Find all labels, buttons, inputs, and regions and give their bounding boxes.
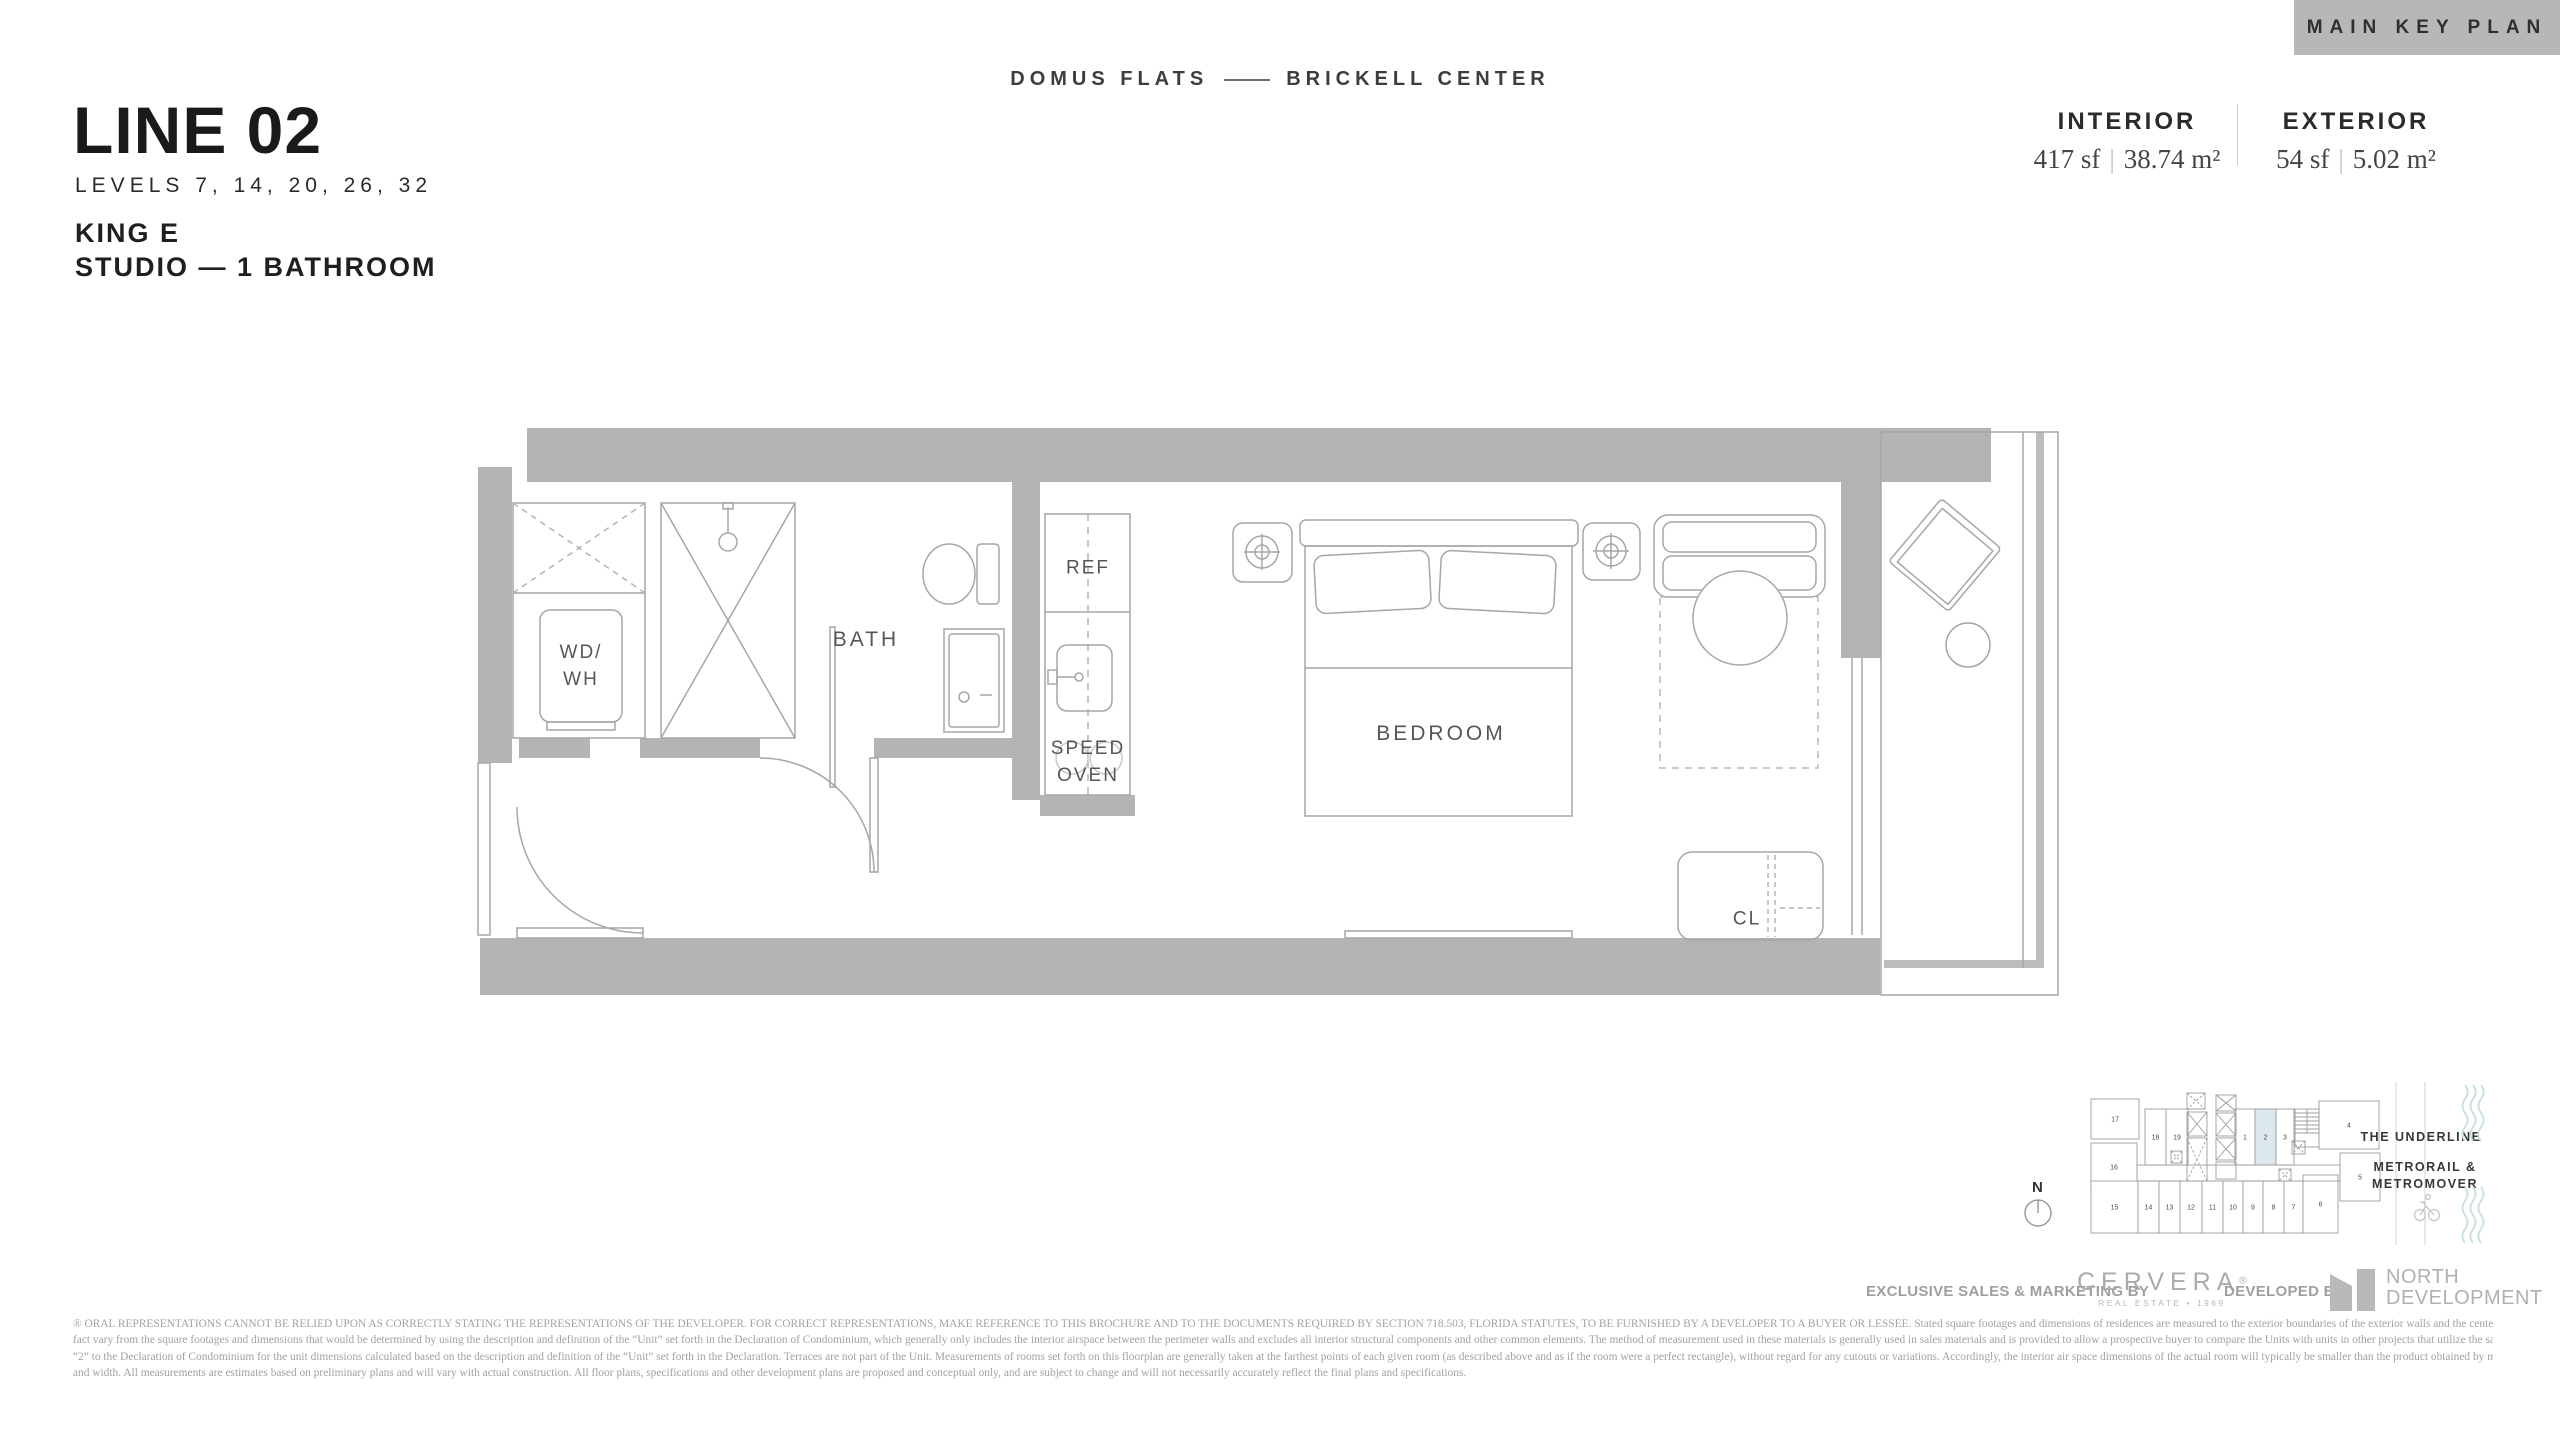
- room-label-bath: BATH: [833, 628, 899, 652]
- brand-header: DOMUS FLATS BRICKELL CENTER: [0, 68, 2560, 91]
- tv: [1345, 931, 1572, 938]
- brand-divider-line: [1224, 79, 1270, 81]
- svg-text:3: 3: [2283, 1135, 2287, 1142]
- svg-text:16: 16: [2110, 1165, 2118, 1172]
- svg-text:5: 5: [2358, 1175, 2362, 1182]
- disclaimer-line: “2” to the Declaration of Condominium fo…: [73, 1349, 2493, 1365]
- bike-icon: [2415, 1195, 2440, 1221]
- disclaimer-line: and width. All measurements are estimate…: [73, 1365, 2493, 1381]
- svg-text:4: 4: [2347, 1123, 2351, 1130]
- north-development-logo-text: NORTH DEVELOPMENT: [2386, 1267, 2543, 1309]
- levels-subtitle: LEVELS 7, 14, 20, 26, 32: [75, 174, 432, 198]
- metrorail-label-1: METRORAIL &: [2373, 1160, 2476, 1174]
- kitchen-sink: [1057, 645, 1112, 711]
- main-key-plan-button[interactable]: MAIN KEY PLAN: [2294, 0, 2560, 55]
- developed-by-label: DEVELOPED BY: [2224, 1283, 2345, 1300]
- exterior-label: EXTERIOR: [2256, 108, 2456, 136]
- svg-text:8: 8: [2272, 1205, 2276, 1212]
- svg-text:14: 14: [2145, 1205, 2153, 1212]
- floor-plan-drawing: [475, 425, 2065, 1000]
- interior-values: 417 sf|38.74 m²: [2027, 144, 2227, 175]
- room-label-wd-wh: WD/WH: [560, 639, 603, 693]
- brand-right: BRICKELL CENTER: [1286, 68, 1550, 91]
- svg-text:6: 6: [2319, 1202, 2323, 1209]
- unit-name: KING E: [75, 218, 180, 249]
- entry-door-arc: [517, 807, 643, 933]
- round-table: [1693, 571, 1787, 665]
- divider-pipe: |: [2329, 144, 2352, 174]
- svg-text:10: 10: [2229, 1205, 2237, 1212]
- legal-disclaimer: ® ORAL REPRESENTATIONS CANNOT BE RELIED …: [73, 1316, 2493, 1382]
- room-label-bedroom: BEDROOM: [1376, 722, 1506, 746]
- metrorail-label-2: METROMOVER: [2372, 1177, 2478, 1191]
- interior-area-block: INTERIOR 417 sf|38.74 m²: [2027, 108, 2227, 175]
- key-plan-units: 17161819123451514131211109876: [2091, 1099, 2380, 1233]
- toilet-tank: [977, 544, 999, 604]
- exterior-area-block: EXTERIOR 54 sf|5.02 m²: [2256, 108, 2456, 175]
- unit-type: STUDIO — 1 BATHROOM: [75, 252, 437, 283]
- pillow: [1439, 550, 1557, 614]
- north-development-logo-icon: [2330, 1268, 2378, 1312]
- svg-text:11: 11: [2209, 1205, 2216, 1212]
- headboard: [1300, 520, 1578, 546]
- room-label-ref: REF: [1066, 555, 1110, 582]
- area-divider-line: [2237, 104, 2238, 166]
- toilet-bowl: [923, 544, 975, 604]
- disclaimer-line: ® ORAL REPRESENTATIONS CANNOT BE RELIED …: [73, 1316, 2493, 1332]
- svg-text:18: 18: [2152, 1135, 2160, 1142]
- entry-door-leaf: [517, 928, 643, 938]
- fixtures: [478, 432, 2058, 995]
- pillow: [1314, 550, 1432, 614]
- balcony-chair: [1889, 499, 2001, 612]
- divider-pipe: |: [2100, 144, 2123, 174]
- exterior-values: 54 sf|5.02 m²: [2256, 144, 2456, 175]
- elevator-core: [2187, 1093, 2236, 1181]
- svg-text:13: 13: [2166, 1205, 2174, 1212]
- disclaimer-line: fact vary from the square footages and d…: [73, 1332, 2493, 1348]
- room-label-speed-oven: SPEEDOVEN: [1051, 735, 1125, 789]
- key-plan: N 17161819123451514131211109876: [2010, 1075, 2560, 1265]
- balcony-table: [1946, 623, 1990, 667]
- balcony-rail: [1884, 432, 2044, 968]
- bath-door-leaf: [870, 758, 878, 872]
- svg-text:9: 9: [2251, 1205, 2255, 1212]
- balcony-outline: [1881, 432, 2058, 995]
- brand-left: DOMUS FLATS: [1010, 68, 1208, 91]
- vanity: [944, 629, 1004, 732]
- svg-text:19: 19: [2173, 1135, 2181, 1142]
- key-plan-drawing: N 17161819123451514131211109876: [2010, 1075, 2560, 1265]
- cervera-logo: CERVERA® REAL ESTATE • 1969: [2077, 1268, 2247, 1308]
- svg-text:17: 17: [2111, 1117, 2119, 1124]
- bath-door-arc: [760, 758, 874, 872]
- room-label-cl: CL: [1733, 906, 1761, 933]
- floor-plan: WD/WH BATH REF SPEEDOVEN BEDROOM CL: [475, 425, 2065, 1000]
- svg-text:7: 7: [2292, 1205, 2296, 1212]
- interior-label: INTERIOR: [2027, 108, 2227, 136]
- svg-text:15: 15: [2111, 1205, 2119, 1212]
- cervera-tagline: REAL ESTATE • 1969: [2077, 1298, 2247, 1308]
- bed: [1305, 546, 1572, 816]
- svg-text:2: 2: [2264, 1135, 2268, 1142]
- svg-text:1: 1: [2243, 1135, 2247, 1142]
- svg-text:12: 12: [2187, 1205, 2195, 1212]
- page-title: LINE 02: [73, 92, 322, 168]
- north-indicator: N: [2032, 1179, 2043, 1196]
- walls: [478, 428, 1991, 995]
